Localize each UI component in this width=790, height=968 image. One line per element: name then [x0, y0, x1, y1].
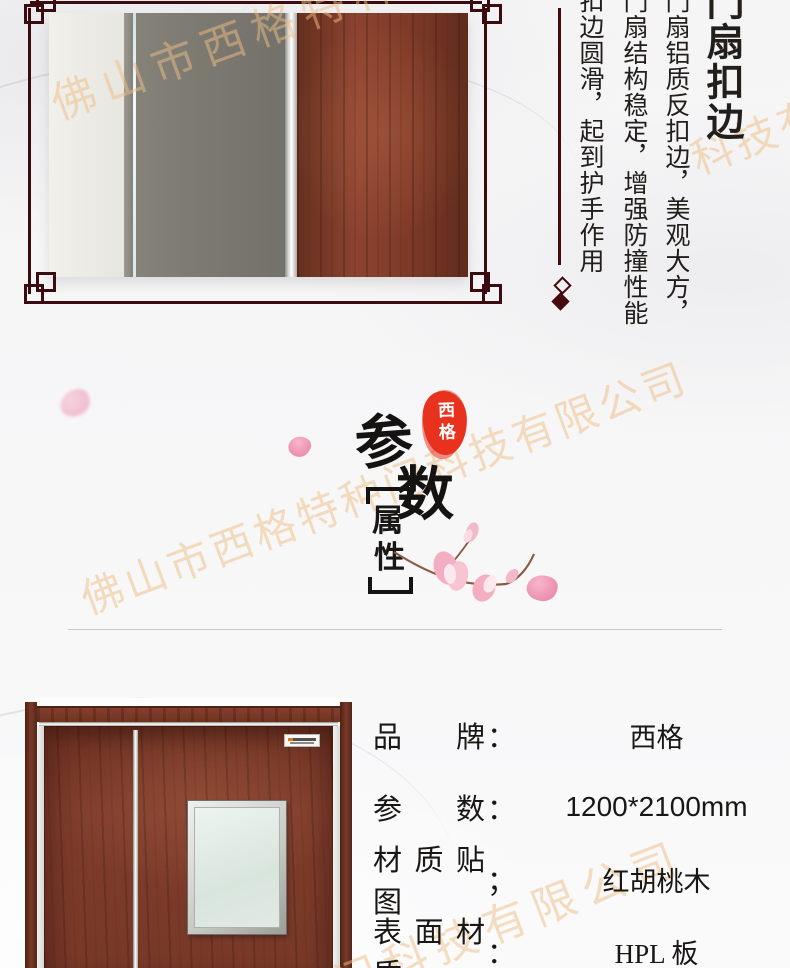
frame-line-right	[484, 8, 487, 294]
spec-row-material-texture: 材质贴图 ； 红胡桃木	[373, 856, 775, 902]
door-frame-post-left	[25, 702, 37, 968]
spec-value: 西格	[542, 716, 771, 755]
frame-line-left	[28, 8, 31, 294]
door-edge-closeup-photo	[49, 13, 468, 277]
wood-door-face	[297, 13, 468, 277]
spec-row-brand: 品牌 ： 西格	[373, 712, 775, 758]
aluminum-strip-vertical	[133, 730, 138, 968]
door-jamb-left	[37, 726, 44, 968]
spec-value: 红胡桃木	[542, 860, 771, 899]
aluminum-edge-strip	[285, 13, 297, 277]
door-jamb-right	[333, 726, 340, 968]
spec-label-text: 表面材质	[373, 909, 485, 968]
spec-label: 参数 ：	[373, 786, 516, 828]
spec-label-separator: ：	[487, 714, 516, 756]
open-diamond-icon	[553, 276, 571, 294]
filled-diamond-icon	[551, 292, 569, 310]
bracket-top-icon	[366, 487, 411, 504]
corner-knot-icon	[462, 0, 508, 34]
knot-square	[482, 4, 502, 24]
spec-label-separator: ；	[487, 858, 516, 900]
spec-row-surface-material: 表面材质 ： HPL 板	[373, 928, 775, 968]
product-detail-page: 门扇扣边 门扇铝质反扣边，美观大方， 门扇结构稳定，增强防撞性能 扣边圆滑，起到…	[0, 0, 790, 968]
knot-square	[482, 284, 502, 304]
door-frame-head-rail	[37, 706, 340, 722]
magnolia-flower-illustration	[388, 506, 538, 606]
spec-list: 品牌 ： 西格 参数 ： 1200*2100mm 材质贴图 ； 红胡桃木 表面材…	[373, 712, 775, 968]
corner-knot-icon	[16, 0, 62, 34]
spec-label: 品牌 ：	[373, 714, 516, 756]
hero-desc-column-2: 门扇结构稳定，增强防撞性能	[621, 0, 646, 326]
hero-desc-column-3: 扣边圆滑，起到护手作用	[577, 0, 602, 274]
spec-label: 表面材质 ：	[373, 909, 516, 968]
photo-edge-shadow	[124, 13, 133, 277]
section-divider-line	[68, 629, 722, 630]
spec-label-separator: ：	[487, 786, 516, 828]
spec-value: HPL 板	[542, 932, 771, 968]
brand-label-text	[288, 738, 316, 741]
spec-label-text: 品牌	[373, 714, 485, 756]
photo-wall-area	[49, 13, 124, 277]
hero-desc-column-1: 门扇铝质反扣边，美观大方，	[663, 0, 688, 326]
frosted-glass	[194, 807, 280, 928]
knot-square	[24, 284, 44, 304]
door-vision-window	[188, 801, 286, 934]
door-frame-post-right	[340, 702, 352, 968]
corner-knot-icon	[16, 268, 62, 314]
vertical-divider-rule	[558, 8, 561, 265]
spec-value: 1200*2100mm	[542, 791, 771, 823]
floating-petal	[57, 387, 93, 420]
spec-row-size: 参数 ： 1200*2100mm	[373, 784, 775, 830]
door-product-photo	[25, 698, 352, 968]
brand-label	[285, 735, 319, 746]
corner-knot-icon	[462, 268, 508, 314]
spec-label-separator: ：	[487, 930, 516, 968]
frame-line-top	[30, 1, 482, 4]
spec-label-text: 参数	[373, 786, 485, 828]
photo-door-edge-face	[136, 13, 285, 277]
floating-petal	[285, 432, 314, 461]
hero-title: 门扇扣边	[702, 0, 740, 142]
brand-label-text	[290, 742, 314, 744]
frame-line-bottom	[30, 301, 482, 304]
brand-seal-stamp: 西格	[422, 390, 468, 455]
knot-square	[24, 4, 44, 24]
brand-seal-text: 西格	[432, 401, 459, 446]
